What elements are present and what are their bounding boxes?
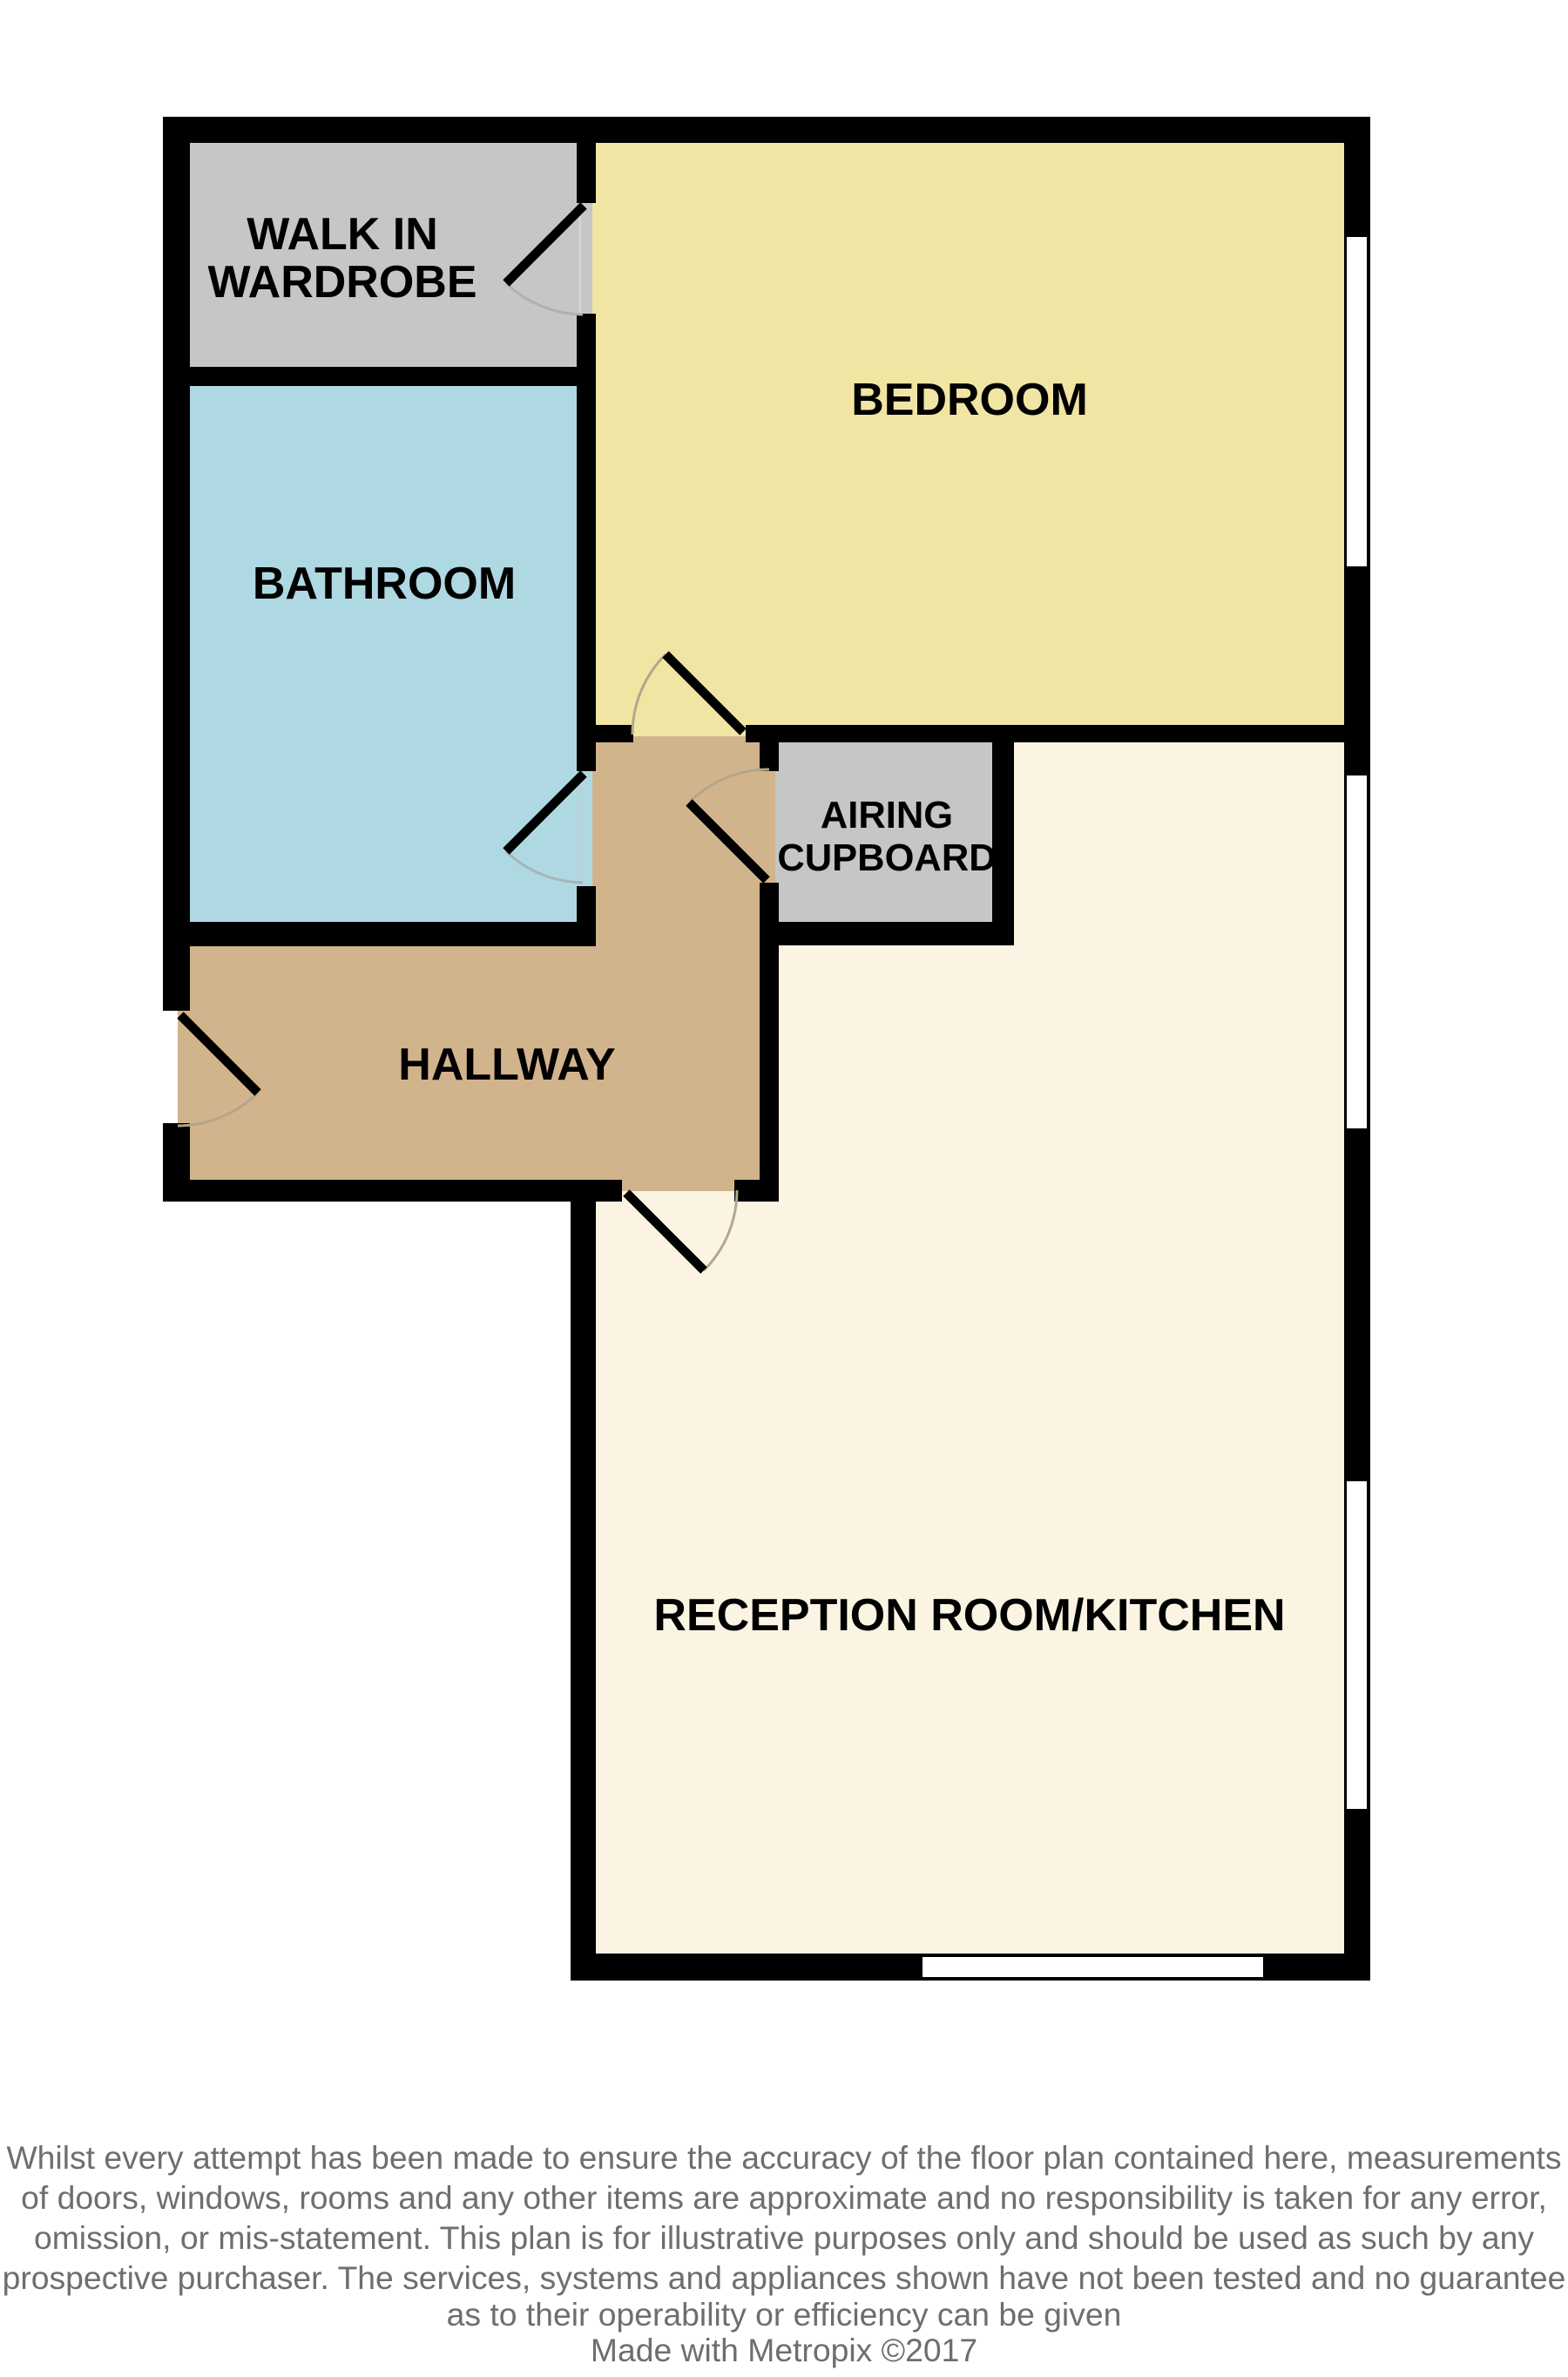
svg-text:WARDROBE: WARDROBE: [207, 257, 476, 308]
svg-text:as to their operability or eff: as to their operability or efficiency ca…: [447, 2296, 1122, 2333]
svg-text:Made with Metropix ©2017: Made with Metropix ©2017: [591, 2332, 977, 2368]
svg-text:HALLWAY: HALLWAY: [398, 1040, 615, 1090]
svg-text:omission, or mis-statement. Th: omission, or mis-statement. This plan is…: [34, 2219, 1534, 2256]
svg-text:Whilst every attempt has been: Whilst every attempt has been made to en…: [6, 2139, 1561, 2176]
svg-text:CUPBOARD: CUPBOARD: [777, 837, 996, 879]
svg-text:WALK IN: WALK IN: [247, 209, 438, 260]
svg-text:BEDROOM: BEDROOM: [851, 375, 1088, 425]
svg-text:of doors, windows, rooms and a: of doors, windows, rooms and any other i…: [21, 2179, 1547, 2216]
svg-text:prospective purchaser. The ser: prospective purchaser. The services, sys…: [3, 2259, 1566, 2296]
svg-text:AIRING: AIRING: [821, 795, 953, 836]
svg-text:BATHROOM: BATHROOM: [253, 559, 516, 609]
svg-text:RECEPTION ROOM/KITCHEN: RECEPTION ROOM/KITCHEN: [653, 1590, 1285, 1641]
